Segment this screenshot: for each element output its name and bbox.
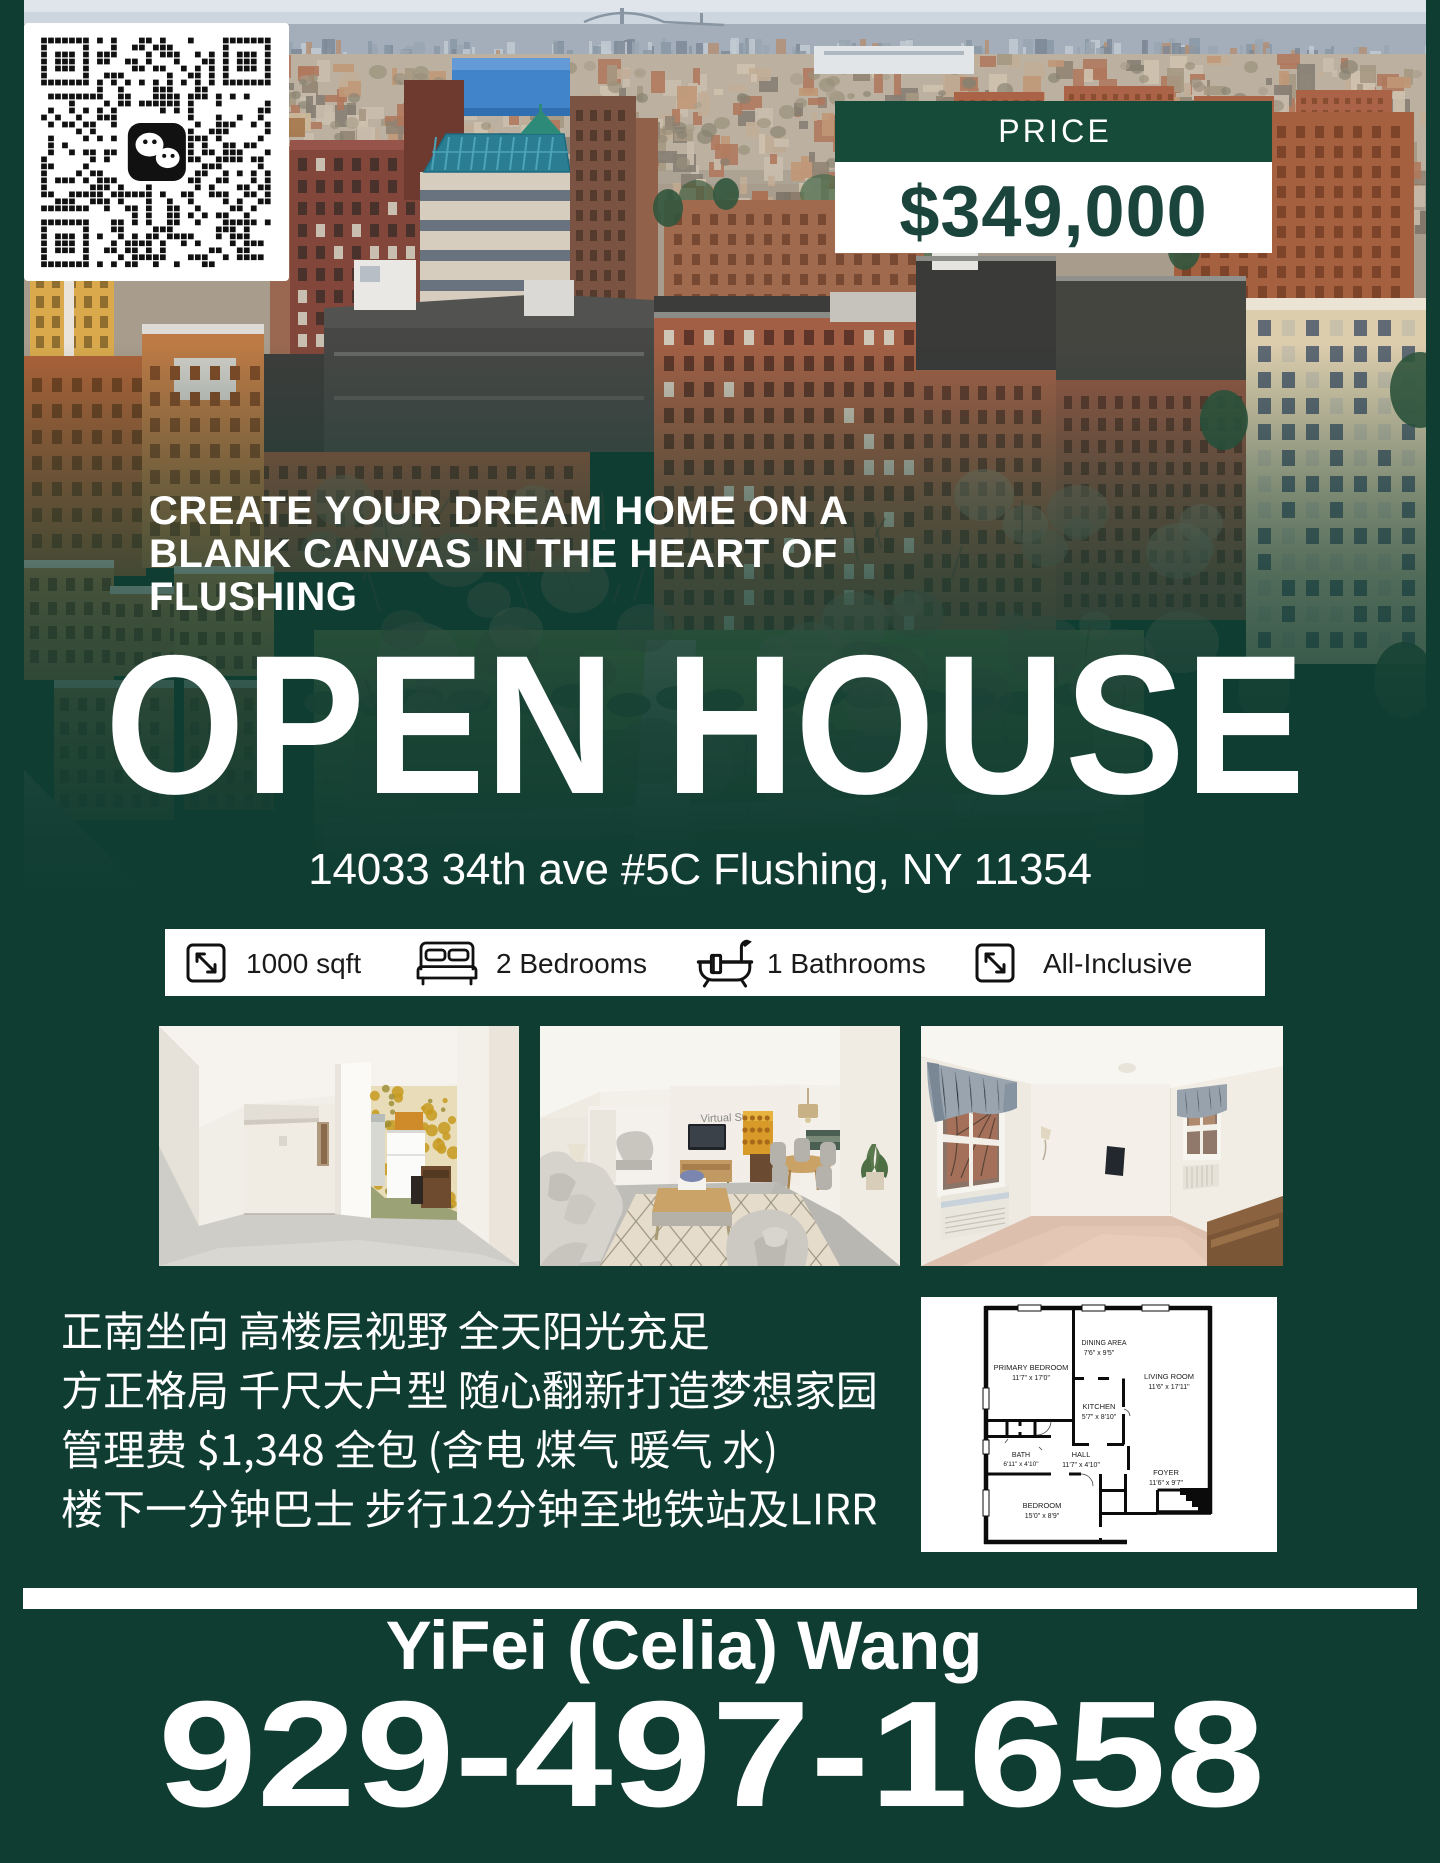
- svg-text:PRIMARY BEDROOM: PRIMARY BEDROOM: [994, 1363, 1069, 1372]
- svg-text:FOYER: FOYER: [1153, 1468, 1179, 1477]
- svg-text:11'7" x 17'0": 11'7" x 17'0": [1012, 1375, 1050, 1382]
- svg-text:7'6" x 9'5": 7'6" x 9'5": [1084, 1350, 1115, 1357]
- svg-text:15'0" x 8'9": 15'0" x 8'9": [1025, 1513, 1060, 1520]
- svg-text:BEDROOM: BEDROOM: [1023, 1501, 1062, 1510]
- svg-text:11'6" x 17'11": 11'6" x 17'11": [1148, 1384, 1190, 1391]
- svg-text:LIVING ROOM: LIVING ROOM: [1144, 1372, 1194, 1381]
- svg-text:DINING AREA: DINING AREA: [1081, 1340, 1126, 1347]
- svg-text:11'6" x 9'7": 11'6" x 9'7": [1149, 1480, 1183, 1487]
- svg-text:5'7" x 8'10": 5'7" x 8'10": [1082, 1414, 1117, 1421]
- svg-text:6'11" x 4'10": 6'11" x 4'10": [1003, 1461, 1039, 1468]
- svg-text:11'7" x 4'10": 11'7" x 4'10": [1062, 1462, 1100, 1469]
- svg-text:HALL: HALL: [1072, 1450, 1091, 1459]
- svg-text:KITCHEN: KITCHEN: [1083, 1402, 1116, 1411]
- svg-text:BATH: BATH: [1012, 1452, 1030, 1459]
